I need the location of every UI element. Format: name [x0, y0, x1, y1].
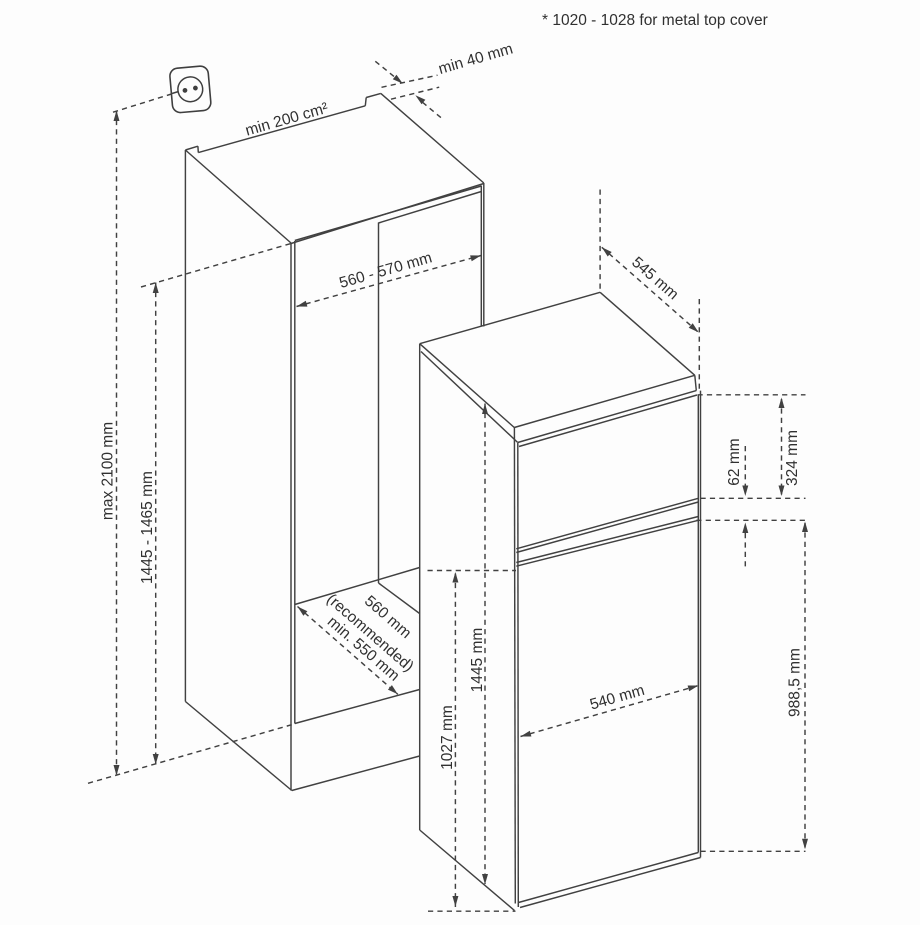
svg-text:988,5 mm: 988,5 mm	[787, 648, 804, 717]
svg-text:324 mm: 324 mm	[784, 430, 801, 486]
svg-text:1027 mm: 1027 mm	[439, 705, 456, 770]
svg-text:1445 - 1465 mm: 1445 - 1465 mm	[139, 471, 156, 584]
svg-text:max 2100 mm: max 2100 mm	[100, 422, 117, 520]
svg-text:62 mm: 62 mm	[726, 438, 743, 485]
svg-text:1445 mm: 1445 mm	[469, 628, 486, 693]
svg-text:* 1020 - 1028 for metal top co: * 1020 - 1028 for metal top cover	[542, 12, 768, 29]
